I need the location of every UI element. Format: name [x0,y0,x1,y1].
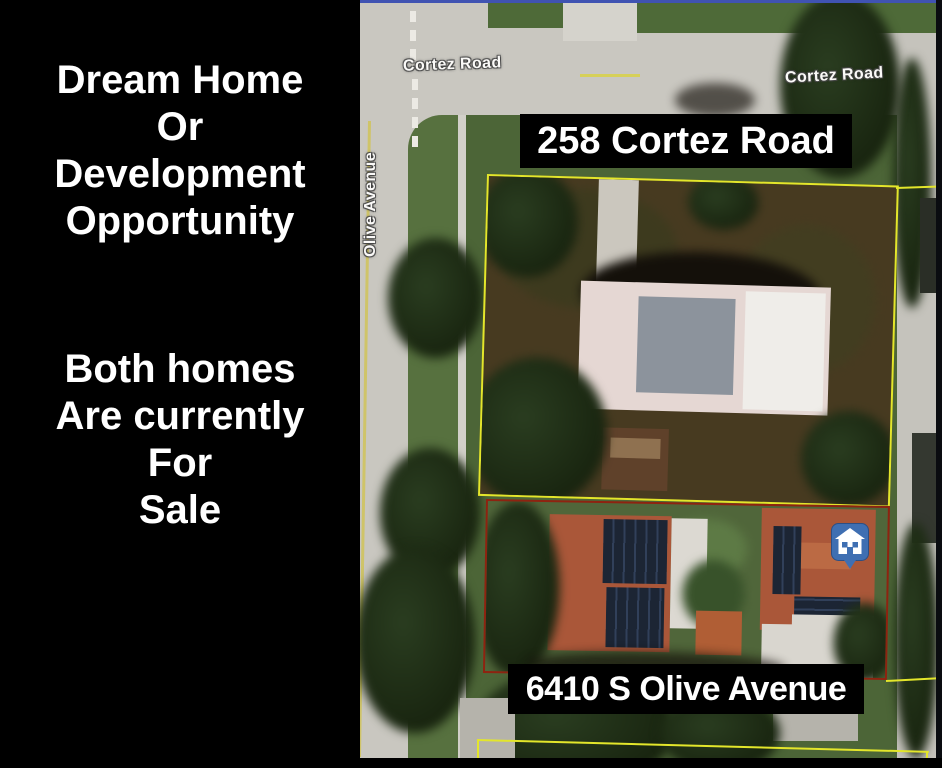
road-dash [412,98,418,109]
driveway-apron [563,3,637,41]
street-label-cortez-road: Cortez Road [403,54,502,75]
satellite-imagery: Cortez Road Cortez Road Olive Avenue 258… [360,3,936,758]
tree-canopy [388,238,483,358]
house-roof-solar [547,514,671,652]
parcel-outline-bottom-partial [926,751,928,758]
address-label-258-cortez: 258 Cortez Road [520,114,852,168]
palm-shadow [675,83,755,117]
headline: Dream Home Or Development Opportunity [0,57,360,245]
left-text-panel: Dream Home Or Development Opportunity Bo… [0,0,360,768]
road-centerline [580,74,640,77]
house-marker-icon [830,522,870,570]
address-label-6410-olive: 6410 S Olive Avenue [508,664,864,714]
parcel-outline-258-cortez [478,174,899,507]
roof-section-gray [636,296,736,395]
grass-strip [488,3,565,28]
shed-roof [601,427,669,491]
map-right-border [936,0,942,768]
shed-roof [695,611,742,656]
solar-panels [605,587,664,648]
road-dash [412,117,418,128]
shed-ridge [610,438,661,459]
road-dash [412,136,418,147]
solar-panels [603,519,668,584]
driveway [460,698,515,758]
road-dash [412,79,418,90]
roof-section-white [743,291,826,411]
palm-canopy [688,174,760,231]
parcel-outline-bottom-partial [477,740,479,758]
aerial-map: Cortez Road Cortez Road Olive Avenue 258… [360,0,942,768]
tree-canopy [800,410,898,507]
tree-canopy [360,548,475,733]
map-bottom-border [360,758,942,768]
crosswalk-dashes [412,79,418,155]
neighbor-structure [920,198,936,293]
road-dash [410,11,416,22]
house-roof [577,281,830,416]
tagline: Both homes Are currently For Sale [0,346,360,534]
solar-panels [772,526,801,594]
real-estate-flyer: Dream Home Or Development Opportunity Bo… [0,0,942,768]
road-dash [410,30,416,41]
street-label-olive-avenue: Olive Avenue [362,141,380,257]
parcel-outline-6410-olive [483,499,890,680]
hedge [894,523,936,758]
